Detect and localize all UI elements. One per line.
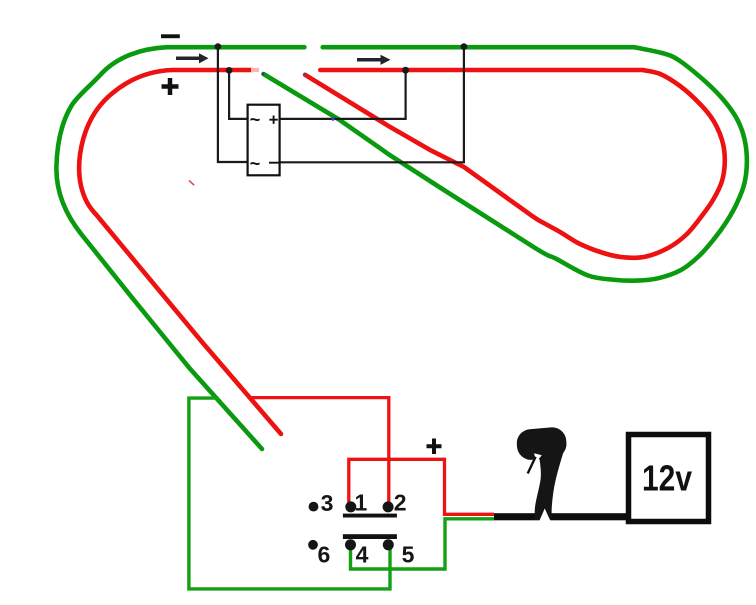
svg-text:5: 5 [402, 542, 415, 568]
svg-text:1: 1 [355, 490, 368, 516]
svg-text:~: ~ [250, 154, 261, 174]
svg-text:2: 2 [394, 490, 407, 516]
svg-text:6: 6 [318, 542, 331, 568]
svg-text:4: 4 [356, 542, 369, 568]
svg-text:~: ~ [250, 110, 261, 130]
svg-text:3: 3 [321, 490, 334, 516]
svg-text:12v: 12v [642, 458, 692, 499]
